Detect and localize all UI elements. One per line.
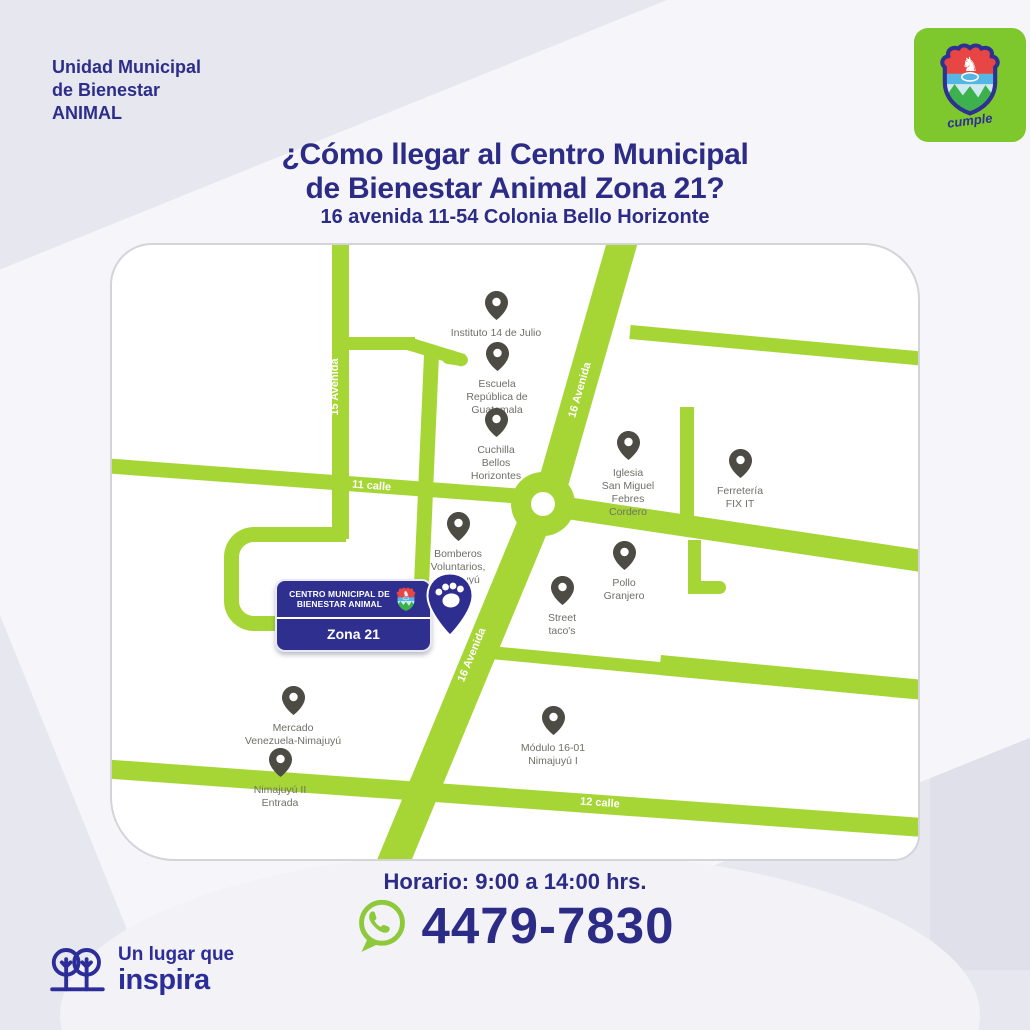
map-panel: 15 Avenida 16 Avenida 11 calle 16 Avenid… [110,243,920,861]
poi-ferreteria-fix-it: Ferretería FIX IT [675,449,805,511]
badge-header: CENTRO MUNICIPAL DE BIENESTAR ANIMAL [277,581,430,619]
map-pin-icon [485,408,508,437]
map-pin-icon [729,449,752,478]
road-lower-right-thick [659,655,920,701]
poi-instituto-14-de-julio: Instituto 14 de Julio [416,291,576,340]
map-pin-icon [486,342,509,371]
municipality-logo: cumple [914,28,1026,142]
map-pin-icon [542,706,565,735]
background-band-right [930,140,1030,970]
road-branch-horizontal [340,337,415,350]
badge-zona-label: Zona 21 [277,619,430,649]
page-title: ¿Cómo llegar al Centro Municipal de Bien… [0,138,1030,206]
map-pin-icon [269,748,292,777]
street-label-15-avenida: 15 Avenida [329,347,341,427]
trees-icon [50,946,106,996]
poi-street-tacos: Street taco's [497,576,627,638]
unit-municipal-text: Unidad Municipal de Bienestar ANIMAL [52,56,201,125]
map-pin-icon [485,291,508,320]
poi-nimajuyu-ii-entrada: Nimajuyú II Entrada [215,748,345,810]
inspira-logo: Un lugar que inspira [50,944,234,997]
badge-crest-icon [394,586,418,613]
whatsapp-icon [356,898,408,954]
roundabout-center [531,492,555,516]
municipal-crest-icon [937,43,1003,117]
opening-hours: Horario: 9:00 a 14:00 hrs. [0,869,1030,895]
road-top-right [629,325,920,366]
poi-iglesia-san-miguel: Iglesia San Miguel Febres Cordero [563,431,693,519]
poi-cuchilla-bellos-horizontes: Cuchilla Bellos Horizontes [431,408,561,483]
map-pin-icon [282,686,305,715]
paw-destination-pin-icon [426,572,474,638]
poi-modulo-16-01: Módulo 16-01 Nimajuyú I [488,706,618,768]
poi-mercado-venezuela: Mercado Venezuela-Nimajuyú [213,686,373,748]
phone-number: 4479-7830 [422,896,675,955]
map-pin-icon [447,512,470,541]
road-right-hook [688,581,726,594]
inspira-text: Un lugar que inspira [118,944,234,997]
poi-escuela-republica: Escuela República de Guatemala [432,342,562,417]
destination-badge: CENTRO MUNICIPAL DE BIENESTAR ANIMAL Zon… [275,579,432,652]
map-pin-icon [617,431,640,460]
map-pin-icon [613,541,636,570]
badge-title: CENTRO MUNICIPAL DE BIENESTAR ANIMAL [289,589,390,610]
map-pin-icon [551,576,574,605]
poster-canvas: ♞ Unidad Municipal de Bienestar ANIMAL [0,0,1030,1030]
address-subtitle: 16 avenida 11-54 Colonia Bello Horizonte [0,206,1030,229]
